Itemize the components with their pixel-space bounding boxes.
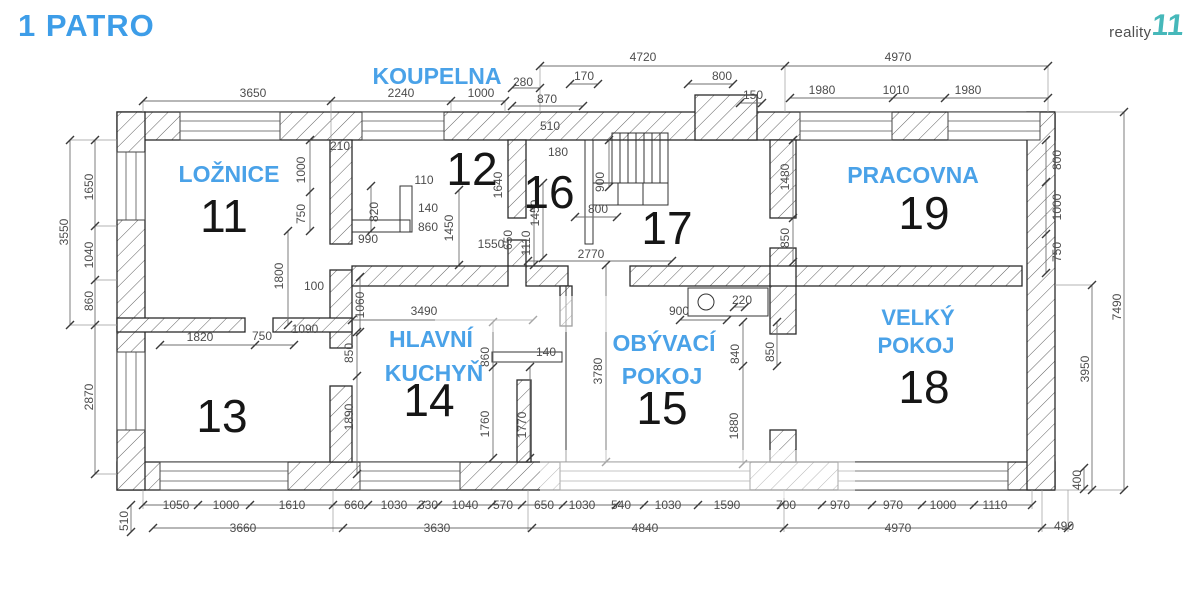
dimension-label: 570 <box>493 498 513 512</box>
dimension-label: 1000 <box>213 498 240 512</box>
dimension-label: 510 <box>117 511 131 531</box>
dimension-label: 1110 <box>519 230 533 255</box>
dimension-label: 1090 <box>292 322 319 336</box>
dimension-label: 3950 <box>1078 355 1092 382</box>
dimension-label: 1650 <box>82 173 96 200</box>
dimension-label: 1450 <box>442 214 456 241</box>
dimension-label: 1030 <box>381 498 408 512</box>
dimension-label: 900 <box>669 304 689 318</box>
dimension-label: 860 <box>418 220 438 234</box>
room-number: 12 <box>446 143 497 195</box>
dimension-label: 1000 <box>930 498 957 512</box>
dimension-label: 2770 <box>578 247 605 261</box>
dimension-label: 1770 <box>515 411 529 438</box>
dimension-label: 1880 <box>727 412 741 439</box>
dimension-label: 650 <box>501 230 515 250</box>
dimension-label: 140 <box>536 345 556 359</box>
dimension-label: 2870 <box>82 383 96 410</box>
dimension-label: 840 <box>728 344 742 364</box>
dimension-label: 210 <box>330 139 350 153</box>
dimension-label: 280 <box>513 75 533 89</box>
dimension-label: 800 <box>1050 150 1064 170</box>
dimension-label: 490 <box>1054 519 1074 533</box>
dimension-label: 3660 <box>230 521 257 535</box>
dimension-label: 3650 <box>240 86 267 100</box>
dimension-label: 1050 <box>163 498 190 512</box>
dimension-label: 110 <box>414 173 433 187</box>
dimension-label: 220 <box>732 293 752 307</box>
dimension-label: 330 <box>418 498 438 512</box>
dimension-label: 1000 <box>294 156 308 183</box>
dimension-label: 970 <box>830 498 850 512</box>
room-number: 14 <box>403 374 454 426</box>
dimension-label: 750 <box>1050 242 1064 262</box>
dimension-label: 540 <box>611 498 631 512</box>
dimension-label: 1820 <box>187 330 214 344</box>
floor-plan-svg: 4720497036502240100028087017080015019801… <box>0 0 1200 597</box>
dimension-label: 1590 <box>714 498 741 512</box>
room-name: OBÝVACÍ <box>612 329 716 356</box>
dimension-label: 850 <box>763 342 777 362</box>
dimension-label: 150 <box>743 88 763 102</box>
dimension-label: 1060 <box>353 291 367 318</box>
room-name: HLAVNÍ <box>389 325 474 352</box>
dimension-label: 3630 <box>424 521 451 535</box>
dimension-label: 1480 <box>778 163 792 190</box>
dimension-label: 700 <box>776 498 796 512</box>
room-number: 18 <box>898 361 949 413</box>
dimension-label: 170 <box>574 69 594 83</box>
dimension-label: 1000 <box>1050 193 1064 220</box>
room-name: KOUPELNA <box>372 63 501 89</box>
dimension-label: 1890 <box>342 403 356 430</box>
dimension-label: 100 <box>304 279 324 293</box>
dimension-label: 7490 <box>1110 293 1124 320</box>
room-number: 17 <box>641 202 692 254</box>
dimension-label: 750 <box>294 204 308 224</box>
dimension-label: 180 <box>548 145 568 159</box>
room-name: POKOJ <box>877 333 954 358</box>
dimension-label: 4970 <box>885 521 912 535</box>
dimension-label: 870 <box>537 92 557 106</box>
wc-enclosure <box>688 288 768 316</box>
dimension-label: 1040 <box>82 241 96 268</box>
dimension-label: 1040 <box>452 498 479 512</box>
dimension-label: 970 <box>883 498 903 512</box>
dimension-label: 800 <box>588 202 608 216</box>
dimension-label: 900 <box>593 172 607 192</box>
dimension-label: 1980 <box>809 83 836 97</box>
dimension-label: 400 <box>1070 470 1084 490</box>
dimension-label: 510 <box>540 119 560 133</box>
room-number: 15 <box>636 382 687 434</box>
dimension-label: 1760 <box>478 410 492 437</box>
dimension-label: 1610 <box>279 498 306 512</box>
dimension-label: 3490 <box>411 304 438 318</box>
dimension-label: 3780 <box>591 357 605 384</box>
dimension-label: 4720 <box>630 50 657 64</box>
dimension-label: 4840 <box>632 521 659 535</box>
dimension-label: 3550 <box>57 218 71 245</box>
dimension-label: 860 <box>82 291 96 311</box>
room-name: PRACOVNA <box>847 162 979 188</box>
dimension-label: 1980 <box>955 83 982 97</box>
room-number: 11 <box>200 190 248 242</box>
room-number: 13 <box>196 390 247 442</box>
dimension-label: 1110 <box>983 498 1008 512</box>
dimension-label: 660 <box>344 498 364 512</box>
dimension-label: 1800 <box>272 262 286 289</box>
dimension-label: 650 <box>534 498 554 512</box>
dimension-label: 990 <box>358 232 378 246</box>
dimension-label: 1030 <box>569 498 596 512</box>
dimension-label: 850 <box>342 343 356 363</box>
dimension-label: 750 <box>252 329 272 343</box>
dimension-label: 820 <box>367 202 381 222</box>
dimension-label: 1030 <box>655 498 682 512</box>
room-name: LOŽNICE <box>179 160 280 187</box>
dimension-label: 140 <box>418 201 438 215</box>
dimension-label: 1010 <box>883 83 910 97</box>
dimension-label: 800 <box>712 69 732 83</box>
room-name: VELKÝ <box>881 305 955 330</box>
walls-layer <box>117 95 1055 490</box>
dimension-label: 4970 <box>885 50 912 64</box>
dimension-label: 850 <box>778 228 792 248</box>
room-number: 16 <box>523 166 574 218</box>
room-number: 19 <box>898 187 949 239</box>
toilet-fixture <box>698 294 714 310</box>
